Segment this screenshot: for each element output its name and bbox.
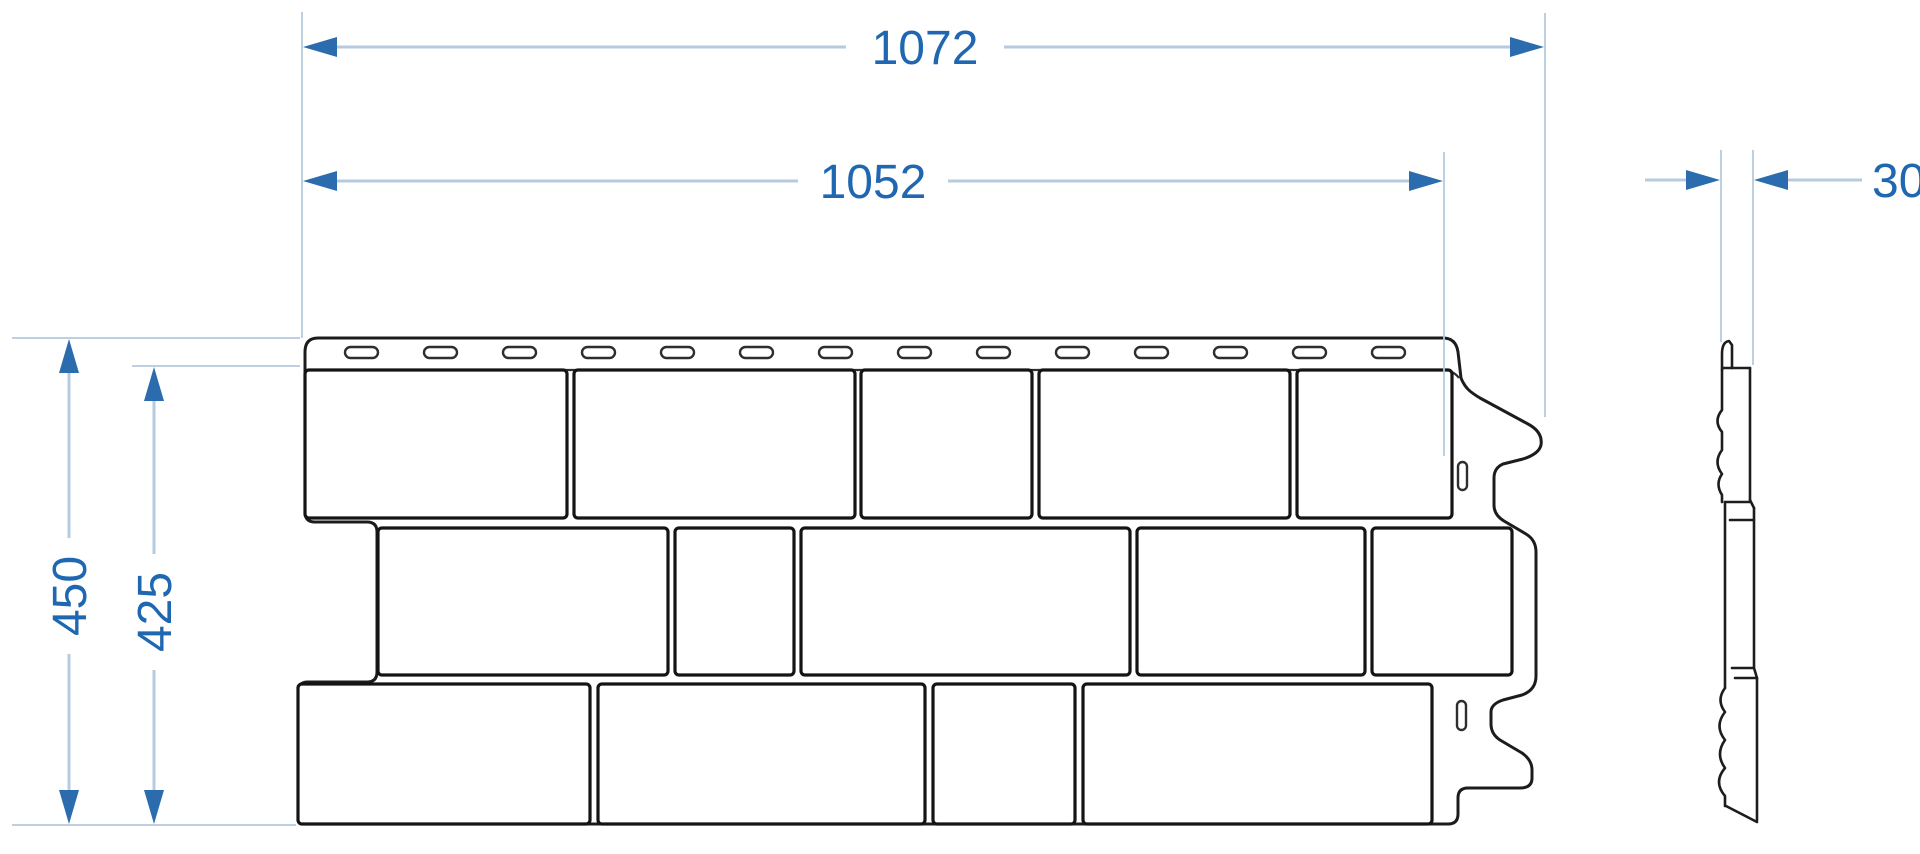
technical-drawing: 1072 1052 450 [0, 0, 1920, 854]
facade-panel-drawing-page: 1072 1052 450 [0, 0, 1920, 854]
nail-slot [1293, 347, 1326, 358]
nail-slot [582, 347, 615, 358]
drain-slot [1457, 701, 1466, 730]
dim-arrow-right [1510, 37, 1544, 57]
dimension-thickness: 30 [1645, 150, 1920, 365]
brick-pattern [298, 370, 1512, 824]
brick [378, 528, 668, 675]
profile-top-hook [1722, 341, 1732, 370]
dim-arrow-down [144, 790, 164, 824]
brick [1039, 370, 1290, 518]
profile-joint-2 [1732, 668, 1757, 678]
brick [574, 370, 855, 518]
profile-bottom-foot [1726, 806, 1757, 822]
dim-arrow-down [59, 790, 79, 824]
front-view [298, 338, 1541, 824]
brick [598, 684, 925, 824]
brick [933, 684, 1075, 824]
dim-arrow-left [303, 171, 337, 191]
profile-left-upper [1718, 370, 1723, 502]
nail-slot [898, 347, 931, 358]
brick [305, 370, 567, 518]
brick [298, 684, 590, 824]
dim-arrow-left [1754, 170, 1788, 190]
brick [675, 528, 794, 675]
nail-slot [977, 347, 1010, 358]
nail-slot [503, 347, 536, 358]
dimension-label-inner-width: 1052 [820, 156, 927, 209]
dim-arrow-up [144, 367, 164, 401]
dim-arrow-right [1686, 170, 1720, 190]
dimension-inner-height: 425 [129, 366, 300, 824]
brick [1372, 528, 1512, 675]
dimension-label-outer-width: 1072 [872, 22, 979, 75]
brick [1297, 370, 1452, 518]
profile-left-lower [1719, 688, 1725, 806]
profile-joint-1 [1725, 500, 1754, 520]
brick [801, 528, 1130, 675]
dim-arrow-right [1409, 171, 1443, 191]
dim-arrow-up [59, 339, 79, 373]
nail-slot [1135, 347, 1168, 358]
dimension-label-outer-height: 450 [44, 556, 97, 636]
nail-slot [819, 347, 852, 358]
nail-slot [1056, 347, 1089, 358]
nail-slot [345, 347, 378, 358]
drain-slot [1458, 462, 1467, 490]
dimension-label-thickness: 30 [1872, 155, 1920, 208]
brick [1083, 684, 1432, 824]
dimension-label-inner-height: 425 [129, 572, 182, 652]
side-view [1718, 341, 1758, 822]
nail-slot [661, 347, 694, 358]
nail-slot [1214, 347, 1247, 358]
nail-slot [424, 347, 457, 358]
brick [1137, 528, 1365, 675]
nail-slot [1372, 347, 1405, 358]
nail-slot [740, 347, 773, 358]
dim-arrow-left [303, 37, 337, 57]
brick [861, 370, 1032, 518]
